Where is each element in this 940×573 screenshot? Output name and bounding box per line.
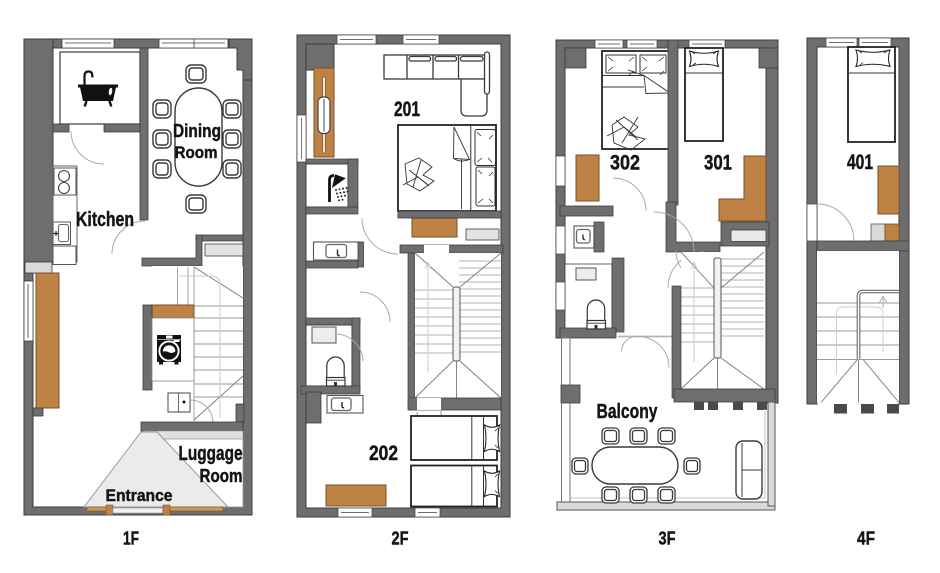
svg-text:301: 301 [704, 151, 732, 175]
svg-text:202: 202 [369, 441, 398, 465]
svg-text:201: 201 [394, 98, 420, 121]
svg-text:1F: 1F [123, 528, 139, 549]
svg-text:4F: 4F [857, 528, 875, 549]
svg-text:Room: Room [200, 466, 243, 486]
svg-text:Room: Room [175, 143, 218, 162]
svg-text:Kitchen: Kitchen [76, 208, 134, 231]
svg-text:2F: 2F [392, 528, 409, 549]
svg-text:Luggage: Luggage [179, 443, 243, 465]
svg-text:Dining: Dining [173, 121, 221, 141]
svg-text:Balcony: Balcony [597, 400, 658, 423]
svg-text:3F: 3F [659, 528, 676, 549]
svg-text:Entrance: Entrance [106, 486, 173, 505]
svg-text:401: 401 [847, 150, 873, 174]
svg-text:302: 302 [610, 151, 640, 175]
